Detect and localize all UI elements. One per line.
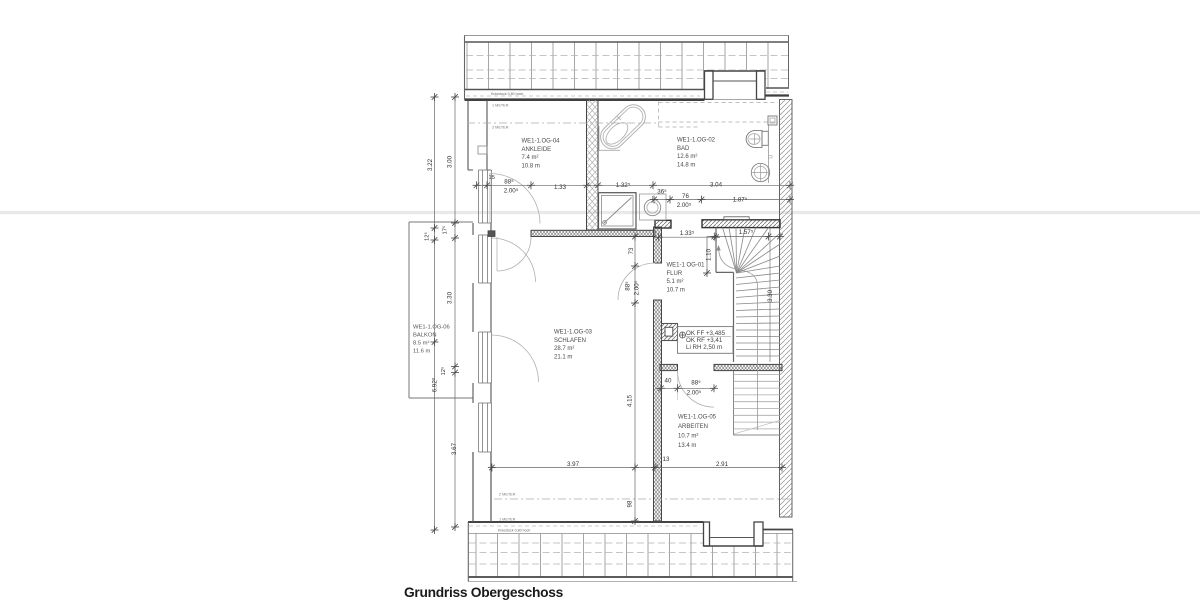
svg-text:12.6 m²: 12.6 m²: [677, 154, 697, 160]
svg-text:1.33: 1.33: [554, 184, 567, 191]
svg-text:OK RF +3,41: OK RF +3,41: [686, 337, 723, 344]
svg-text:88⁵: 88⁵: [691, 380, 701, 387]
svg-text:2.00⁵: 2.00⁵: [634, 280, 641, 295]
svg-text:10.7 m²: 10.7 m²: [678, 434, 698, 440]
svg-text:BAD: BAD: [677, 146, 690, 152]
svg-text:11.6 m: 11.6 m: [413, 349, 430, 355]
svg-text:6.92⁰: 6.92⁰: [432, 377, 439, 392]
svg-text:21.1 m: 21.1 m: [554, 354, 572, 360]
svg-text:88⁵: 88⁵: [625, 281, 632, 291]
svg-text:SCHLAFEN: SCHLAFEN: [554, 338, 586, 344]
svg-text:28.7 m²: 28.7 m²: [554, 346, 574, 352]
svg-text:1 METER: 1 METER: [492, 103, 509, 107]
svg-text:5.1 m²: 5.1 m²: [667, 279, 684, 285]
svg-text:13: 13: [663, 456, 670, 463]
svg-text:8.5 m²: 8.5 m²: [413, 341, 429, 347]
svg-text:2.91: 2.91: [716, 461, 729, 468]
svg-text:3.30: 3.30: [767, 289, 774, 302]
svg-text:BALKON: BALKON: [413, 333, 437, 339]
svg-text:OK FF +3,485: OK FF +3,485: [686, 330, 726, 337]
svg-text:1 METER: 1 METER: [499, 517, 516, 521]
svg-text:Grundriss Obergeschoss: Grundriss Obergeschoss: [404, 585, 564, 600]
svg-text:2 METER: 2 METER: [499, 492, 516, 496]
svg-text:3.00: 3.00: [447, 155, 454, 168]
svg-text:FLUR: FLUR: [667, 271, 683, 277]
svg-text:2 METER: 2 METER: [492, 126, 509, 130]
svg-text:2.00⁵: 2.00⁵: [504, 188, 519, 195]
svg-text:1.57⁵: 1.57⁵: [739, 229, 754, 236]
svg-text:3.04: 3.04: [710, 182, 723, 189]
svg-text:1.33⁵: 1.33⁵: [680, 230, 695, 237]
svg-text:2.00⁵: 2.00⁵: [687, 390, 702, 397]
svg-text:73: 73: [628, 247, 635, 254]
svg-text:98: 98: [627, 500, 634, 507]
svg-text:WE1-1.OG-03: WE1-1.OG-03: [554, 330, 593, 336]
svg-text:Kniestock 0,80 hoch: Kniestock 0,80 hoch: [491, 92, 523, 96]
svg-text:1.87⁵: 1.87⁵: [733, 197, 748, 204]
svg-text:3.22: 3.22: [427, 158, 434, 171]
svg-text:3.97: 3.97: [567, 461, 580, 468]
svg-text:1.32⁵: 1.32⁵: [616, 182, 631, 189]
svg-text:12⁵: 12⁵: [440, 366, 447, 375]
svg-text:3.30: 3.30: [447, 291, 454, 304]
svg-text:10.7 m: 10.7 m: [667, 287, 685, 293]
svg-text:7.4 m²: 7.4 m²: [522, 155, 539, 161]
svg-text:WE1-1.OG-06: WE1-1.OG-06: [413, 325, 450, 331]
svg-text:76: 76: [682, 193, 689, 200]
svg-text:ANKLEIDE: ANKLEIDE: [522, 147, 552, 153]
svg-text:WE1-1.OG-05: WE1-1.OG-05: [678, 415, 717, 421]
svg-text:ARBEITEN: ARBEITEN: [678, 424, 708, 430]
svg-text:14.8 m: 14.8 m: [677, 162, 695, 168]
svg-text:WE1-1.OG-02: WE1-1.OG-02: [677, 138, 716, 144]
svg-text:12⁵: 12⁵: [424, 231, 431, 240]
svg-text:Li RH 2,50 m: Li RH 2,50 m: [686, 344, 722, 351]
svg-text:3.67: 3.67: [451, 442, 458, 455]
svg-text:WE1-1 OG-01: WE1-1 OG-01: [667, 263, 706, 269]
svg-text:17⁵: 17⁵: [442, 225, 449, 234]
svg-text:88⁵: 88⁵: [504, 178, 514, 185]
svg-text:4.15: 4.15: [627, 394, 634, 407]
svg-text:Kniestock 0,80 hoch: Kniestock 0,80 hoch: [498, 529, 530, 533]
svg-text:36⁵: 36⁵: [657, 189, 667, 196]
svg-text:1.10: 1.10: [706, 248, 713, 261]
svg-text:40: 40: [665, 378, 672, 385]
svg-text:2.00⁵: 2.00⁵: [677, 202, 692, 209]
svg-text:13.4 m: 13.4 m: [678, 443, 696, 449]
svg-text:10.8 m: 10.8 m: [522, 163, 540, 169]
svg-text:WE1-1.OG-04: WE1-1.OG-04: [522, 139, 561, 145]
svg-text:15: 15: [489, 175, 495, 181]
